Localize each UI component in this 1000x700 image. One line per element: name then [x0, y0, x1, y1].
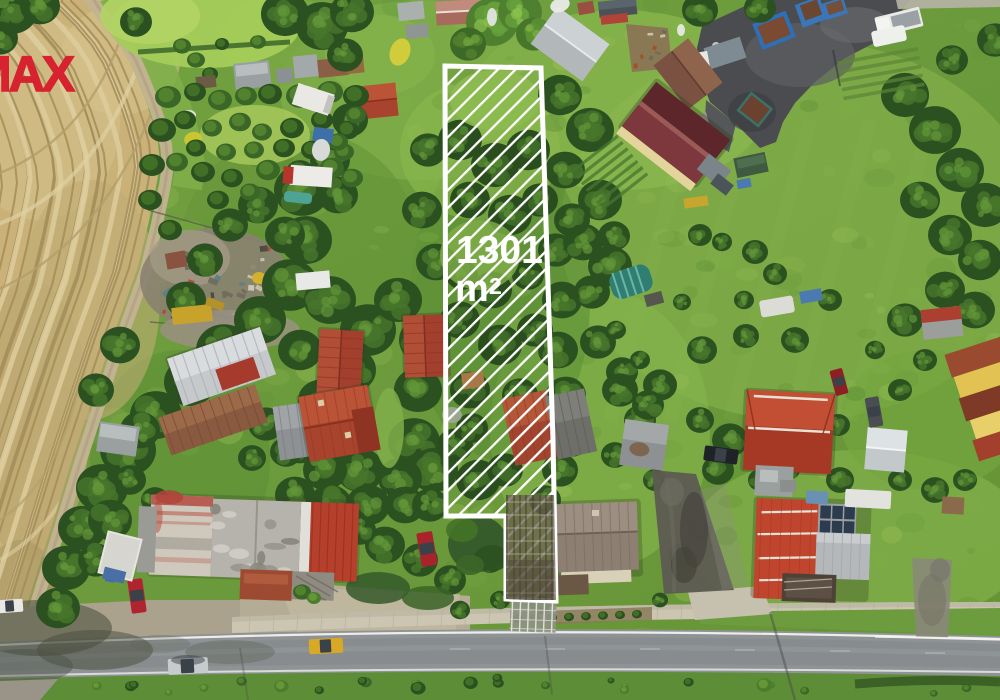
svg-text:2: 2 — [489, 273, 502, 299]
svg-text:m: m — [455, 268, 489, 310]
svg-text:1301: 1301 — [456, 229, 543, 272]
svg-text:MAX: MAX — [0, 46, 75, 102]
